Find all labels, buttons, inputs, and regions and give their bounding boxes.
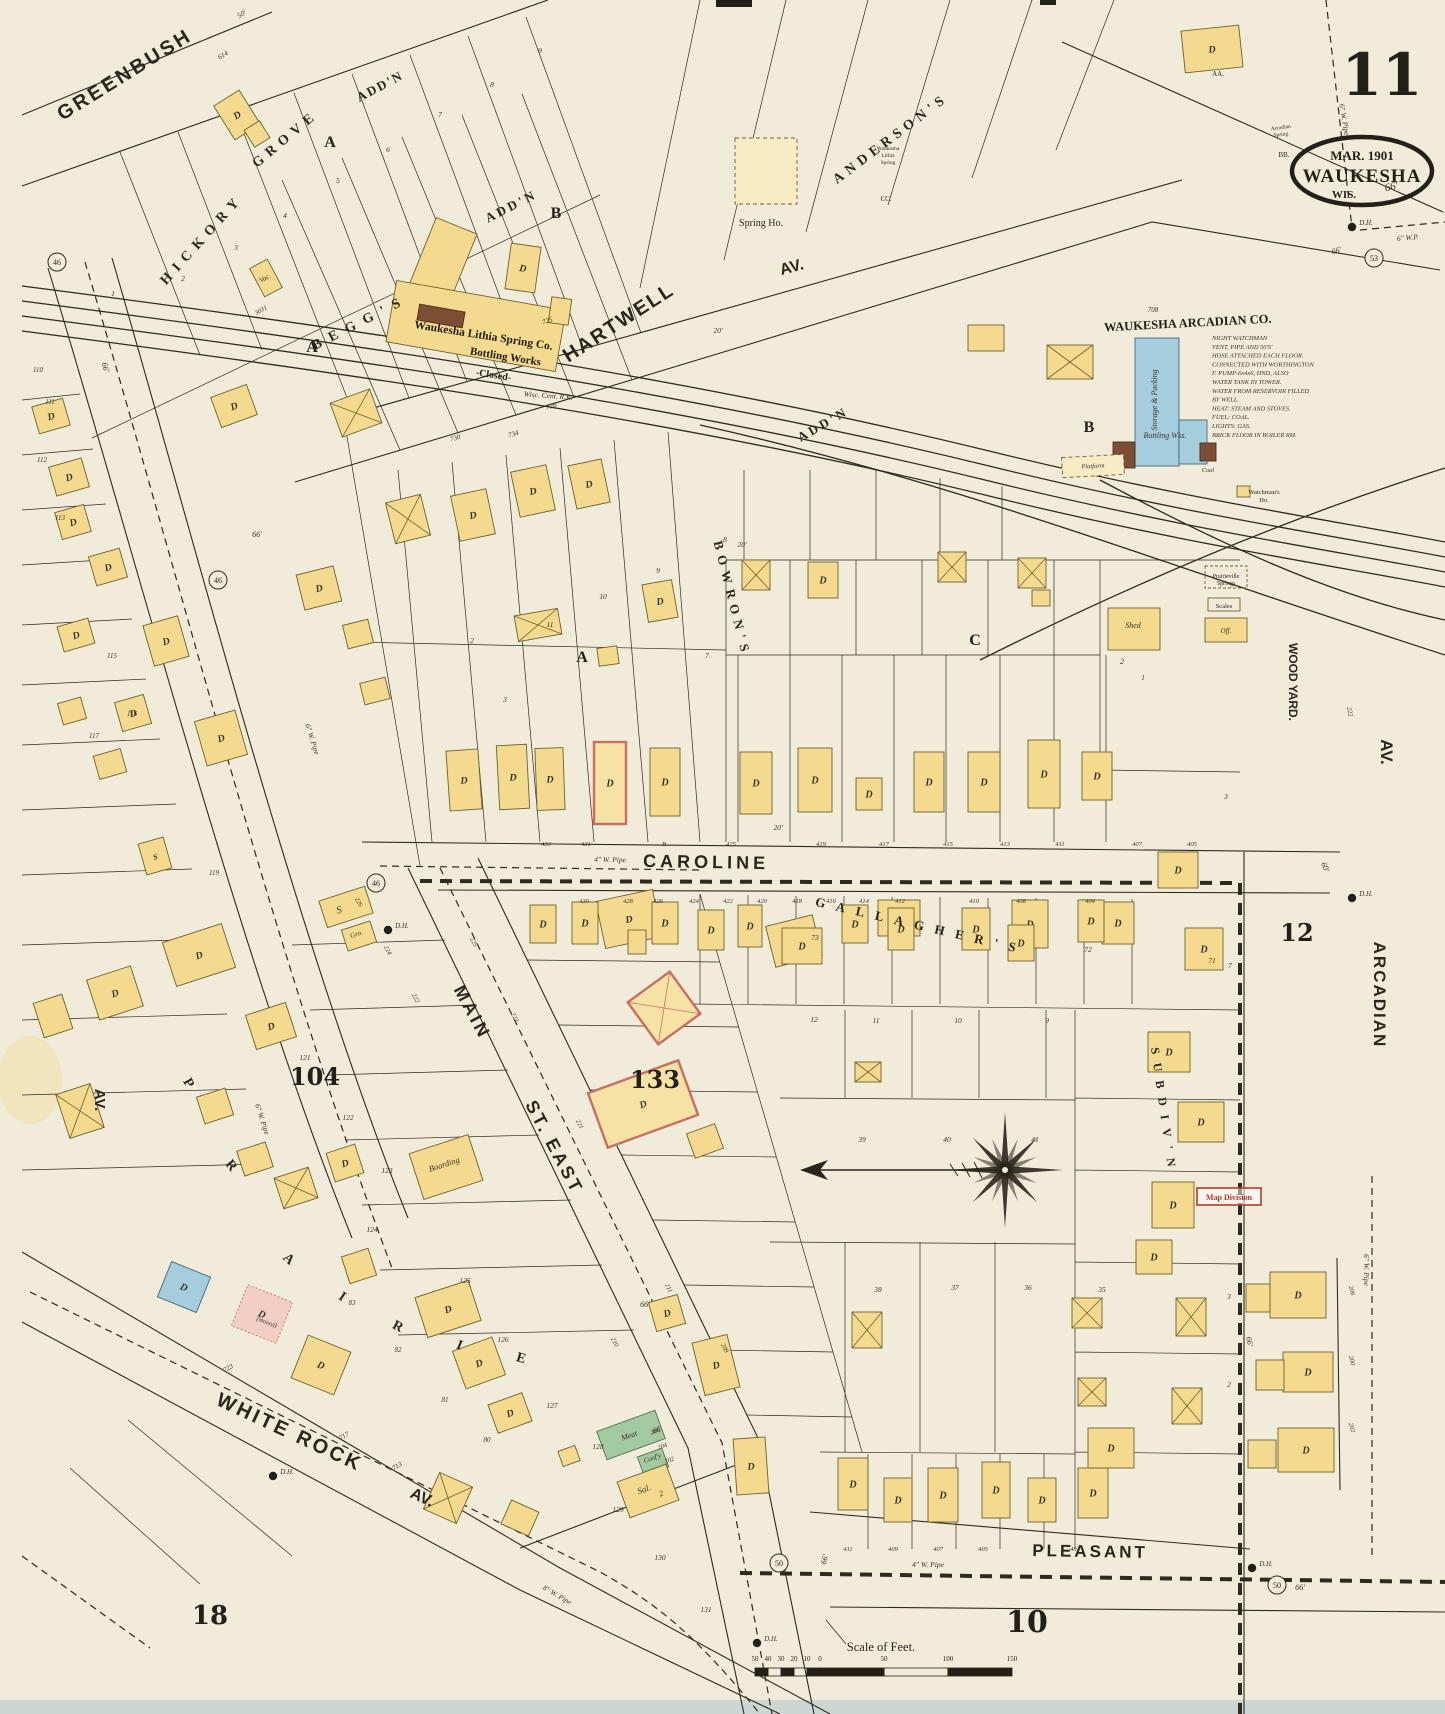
map-label-pl: Watchman's	[1248, 489, 1280, 496]
map-label-lot: 71	[1208, 956, 1216, 965]
map-label-lot: 38	[873, 1285, 882, 1294]
map-label-blk: 12	[1280, 918, 1313, 947]
map-label-lot: 111	[45, 398, 54, 406]
building-use-label: D	[924, 778, 932, 789]
map-label-lot: 3	[502, 695, 507, 704]
map-label-dim: 66'	[640, 1300, 650, 1309]
building: D	[968, 752, 1000, 812]
arcadian-note-line: BY WELL.	[1212, 397, 1239, 404]
building: D	[798, 748, 832, 812]
map-label-ad: 411	[843, 1546, 852, 1553]
map-label-lot: 123	[381, 1166, 393, 1175]
building: D	[733, 1437, 769, 1495]
map-label-ad: B	[662, 841, 666, 848]
map-label-ad: 422	[723, 898, 734, 905]
map-label-lot: 112	[37, 456, 47, 464]
map-label-ad: 418	[792, 898, 803, 905]
stamp-date: MAR. 1901	[1330, 148, 1394, 163]
map-label-ad: 407	[933, 1546, 944, 1553]
map-label-pl: AA.	[1212, 70, 1224, 78]
map-label-ad: 408	[1016, 898, 1027, 905]
map-label-blkletter: A	[576, 649, 588, 666]
map-label-pl: CC.	[880, 195, 891, 203]
building: D	[982, 1462, 1010, 1518]
map-label-lot: 110	[33, 366, 43, 374]
building-use-label: D	[848, 1480, 856, 1491]
building-use-label: D	[893, 1496, 901, 1507]
scale-bar-label: Scale of Feet.	[847, 1640, 915, 1654]
building-footprint	[628, 930, 646, 954]
map-label-ad: 431	[581, 841, 591, 848]
compass-hub	[1002, 1167, 1009, 1174]
building: D	[1028, 1478, 1056, 1522]
building-footprint	[597, 646, 619, 667]
map-label-lot: 125	[459, 1276, 471, 1285]
valve-circle-number: 46	[53, 258, 61, 267]
sanborn-map-sheet: DDDDDDDDDDDDDDDDDDDDDDDDDDDDDDSDDDDDDDDD…	[0, 0, 1445, 1714]
map-label-blk: 10	[1006, 1605, 1048, 1640]
map-label-lot: 35	[1097, 1285, 1106, 1294]
building-use-label: D	[545, 774, 554, 785]
map-label-blkletter: B	[1084, 419, 1095, 436]
building: D	[1283, 1352, 1333, 1392]
scan-edge-band	[0, 1700, 1445, 1714]
building-footprint	[1256, 1360, 1284, 1390]
map-label-lot: 3	[1223, 792, 1228, 801]
building-use-label: D	[1301, 1446, 1309, 1457]
scale-minor-segment	[755, 1668, 768, 1676]
map-label-lot: 113	[55, 514, 65, 522]
building-use-label: D	[508, 772, 517, 783]
map-label-pipe: 6" W.P.	[1397, 232, 1420, 243]
building: D	[738, 905, 762, 947]
map-label-st: PLEASANT	[1032, 1541, 1148, 1562]
map-label-lot: 121	[299, 1053, 310, 1062]
hydrant-label: D.H.	[1358, 890, 1373, 898]
paper-stain	[0, 1036, 62, 1124]
building: D	[642, 580, 678, 623]
building: D	[1152, 1182, 1194, 1228]
map-label-ad: 424	[689, 898, 700, 905]
map-label-lot: 124	[366, 1225, 378, 1234]
building-use-label: D	[991, 1486, 999, 1497]
stamp-city: WAUKESHA	[1303, 166, 1422, 187]
building-use-label: D	[938, 1491, 946, 1502]
building-use-label: D	[1207, 44, 1216, 56]
hydrant-label: D.H.	[394, 922, 409, 930]
map-label-pl: Spring	[881, 160, 896, 166]
map-label-lot: 81	[442, 1396, 449, 1404]
map-label-bl: Bottling Wks.	[1143, 431, 1186, 440]
building	[1072, 1298, 1102, 1328]
map-label-lot: 9	[656, 566, 660, 575]
map-label-ad: 420	[757, 898, 768, 905]
map-label-dim: 20'	[737, 540, 747, 549]
arcadian-note-line: CONNECTED WITH WORTHINGTON	[1212, 361, 1315, 368]
building: D	[496, 744, 529, 809]
arcadian-note-line: VENT. PIPE AND 50'S'	[1212, 344, 1273, 351]
building-use-label: D	[1039, 770, 1047, 781]
building: D	[535, 748, 565, 811]
building-use-label: D	[1088, 1489, 1096, 1500]
map-label-ad: 415	[943, 841, 954, 848]
map-label-lot: 40	[943, 1135, 951, 1144]
map-canvas: DDDDDDDDDDDDDDDDDDDDDDDDDDDDDDSDDDDDDDDD…	[0, 0, 1445, 1714]
scale-tick-label: 50	[881, 1655, 889, 1663]
building	[742, 560, 770, 590]
building: D	[1088, 1428, 1134, 1468]
building: D	[572, 902, 598, 944]
map-label-st: CAROLINE	[643, 851, 769, 873]
scale-major-segment	[948, 1668, 1012, 1676]
hydrant-dot	[1348, 223, 1356, 231]
building-use-label: D	[1106, 1444, 1114, 1455]
building: D	[698, 910, 724, 950]
scale-minor-segment	[781, 1668, 794, 1676]
hydrant-dot	[753, 1639, 761, 1647]
map-label-lot: 82	[395, 1346, 403, 1354]
map-label-blk: 133	[630, 1065, 680, 1094]
map-label-lot: 1	[111, 289, 115, 298]
building: D	[1078, 900, 1104, 942]
map-label-ad: 430	[579, 898, 590, 905]
valve-circle-number: 46	[214, 576, 222, 585]
map-label-lot: 119	[209, 869, 219, 877]
map-label-pl: Spring Ho.	[739, 218, 783, 229]
map-label-lot: 2	[470, 636, 474, 645]
map-label-lot: 130	[654, 1553, 666, 1562]
building-footprint	[1032, 590, 1050, 606]
building-footprint	[1246, 1284, 1270, 1312]
map-label-bl: Platform	[1080, 462, 1105, 470]
scan-artifact	[1040, 0, 1056, 5]
building: D	[1270, 1272, 1326, 1318]
building	[938, 552, 966, 582]
building	[1200, 443, 1216, 461]
building: D	[446, 749, 482, 811]
arcadian-note-line: WATER TANK IN TOWER.	[1212, 379, 1282, 386]
building: D	[652, 902, 678, 944]
scale-tick-label: 30	[778, 1655, 786, 1663]
building: D	[914, 752, 944, 812]
scale-tick-label: 150	[1007, 1655, 1018, 1663]
map-label-ad: 708	[1148, 306, 1159, 314]
building	[1032, 590, 1050, 606]
valve-circle-number: 53	[1370, 254, 1378, 263]
map-label-lot: 117	[89, 732, 99, 740]
building: D	[1185, 928, 1223, 970]
map-label-lot: 115	[107, 652, 117, 660]
map-label-lot: 10	[599, 592, 607, 601]
map-label-dim: 66'	[252, 530, 262, 539]
map-division-text: Map Division	[1206, 1193, 1253, 1202]
building-use-label: D	[1196, 1118, 1204, 1129]
building: D	[808, 562, 838, 598]
building-use-label: D	[745, 922, 753, 933]
map-label-ad: 407	[1132, 841, 1143, 848]
building: D	[530, 905, 556, 943]
map-label-lot: 3	[1226, 1292, 1231, 1301]
map-label-lot: 37	[950, 1283, 959, 1292]
map-label-ad: 425	[726, 841, 737, 848]
scale-major-segment	[820, 1668, 884, 1676]
building-use-label: D	[1168, 1201, 1176, 1212]
map-label-bl: Coal	[1202, 467, 1215, 474]
map-label-blkletter: A	[306, 339, 318, 356]
map-label-ad: 405	[978, 1546, 989, 1553]
building-footprint	[1248, 1440, 1276, 1468]
map-label-lot: 12	[810, 1015, 818, 1024]
map-label-lot: 36	[1023, 1283, 1032, 1292]
building	[628, 930, 646, 954]
building-use-label: D	[979, 778, 987, 789]
map-label-lot: 2	[1227, 1380, 1231, 1389]
building-use-label: D	[751, 779, 759, 790]
map-label-pl: Springs	[1217, 581, 1236, 587]
building	[1018, 558, 1046, 588]
map-label-lot: 80	[484, 1436, 492, 1444]
map-label-ad: 419	[816, 841, 827, 848]
map-label-lot: 127	[546, 1401, 558, 1410]
building-use-label: D	[660, 919, 668, 930]
map-label-dim: 20'	[773, 823, 783, 832]
building: D	[1158, 852, 1198, 888]
building-use-label: D	[1199, 945, 1207, 956]
arcadian-note-line: HOSE ATTACHED EACH FLOOR.	[1211, 353, 1304, 360]
arcadian-note-line: WATER FROM RESERVOIR FILLED	[1212, 388, 1310, 395]
building-use-label: D	[1173, 866, 1181, 877]
building: D	[1278, 1428, 1334, 1472]
map-label-blk: 18	[192, 1601, 228, 1631]
map-label-lot: 8	[723, 535, 727, 544]
building-use-label: D	[1113, 919, 1121, 930]
scale-tick-label: 0	[818, 1655, 822, 1663]
map-label-lot: 9	[1045, 1016, 1049, 1025]
map-label-lot: 126	[497, 1335, 509, 1344]
building: D	[884, 1478, 912, 1522]
map-label-ad: 433	[541, 841, 552, 848]
building-use-label: D	[706, 926, 714, 937]
hydrant-label: D.H.	[1258, 1560, 1273, 1568]
map-label-ad: 426	[653, 898, 664, 905]
building-footprint	[735, 138, 797, 204]
map-label-lot: 7	[438, 110, 442, 119]
map-label-st: ARCADIAN	[1370, 942, 1389, 1049]
map-label-bl: Storage & Packing	[1150, 369, 1159, 430]
map-label-ad: 409	[888, 1546, 899, 1553]
scale-tick-label: 10	[804, 1655, 812, 1663]
map-label-lot: 10	[954, 1016, 962, 1025]
building-use-label: D	[1164, 1048, 1172, 1059]
arcadian-note-line: HEAT: STEAM AND STOVES.	[1211, 405, 1291, 412]
hydrant-label: D.H.	[279, 1468, 294, 1476]
scale-minor-segment	[807, 1668, 820, 1676]
building: D	[505, 243, 541, 293]
map-label-ad: 404	[1085, 898, 1096, 905]
map-label-pipe: 6" W. Pipe	[1362, 1254, 1371, 1286]
scale-tick-label: 20	[791, 1655, 799, 1663]
map-label-lot: 129	[612, 1505, 624, 1514]
map-label-lot: 116	[127, 710, 137, 718]
building: D	[1082, 752, 1112, 800]
building: D	[1136, 1240, 1172, 1274]
map-label-lot: 4	[283, 211, 287, 220]
hydrant-dot	[384, 926, 392, 934]
map-label-ad: 411	[1055, 841, 1064, 848]
map-label-ad: 413	[1000, 841, 1011, 848]
building: D	[1028, 740, 1060, 808]
map-label-bl: Off.	[1221, 627, 1232, 635]
building: D	[856, 778, 882, 810]
building-use-label: D	[818, 576, 826, 587]
sheet-number: 11	[1342, 41, 1423, 109]
building: D	[1078, 1468, 1108, 1518]
building	[1078, 1378, 1106, 1406]
map-label-blkletter: C	[969, 632, 981, 649]
map-label-lot: 7	[1228, 961, 1232, 970]
building-use-label: D	[810, 776, 818, 787]
map-label-lot: 11	[873, 1016, 880, 1025]
map-label-lot: 83	[349, 1299, 357, 1307]
map-label-st: WOOD YARD.	[1286, 643, 1300, 721]
building-use-label: D	[1086, 917, 1094, 928]
scale-tick-label: 50	[752, 1655, 760, 1663]
scale-tick-label: 100	[943, 1655, 954, 1663]
building	[597, 646, 619, 667]
map-label-blkletter: A	[324, 134, 336, 151]
map-label-lot: 7	[705, 651, 709, 660]
building-use-label: D	[1092, 772, 1100, 783]
map-label-lot: 72	[1084, 945, 1092, 954]
building-use-label: D	[580, 919, 588, 930]
valve-circle-number: 50	[1273, 1581, 1281, 1590]
map-label-pl: Lithia	[881, 153, 895, 159]
hydrant-label: D.H.	[1358, 219, 1373, 227]
map-label-ad: 417	[879, 841, 890, 848]
building	[852, 1312, 882, 1348]
map-label-ad: 428	[623, 898, 634, 905]
building	[1047, 345, 1093, 379]
map-label-pl: Prairieville	[1213, 574, 1240, 580]
map-label-dim: 66'	[1244, 1336, 1255, 1347]
map-label-lot: 73	[811, 933, 819, 942]
map-label-ad: 414	[859, 898, 870, 905]
building	[735, 138, 797, 204]
map-division-stamp: Map Division	[1197, 1188, 1261, 1205]
map-label-bl: Shed	[1125, 621, 1142, 630]
building	[1176, 1298, 1206, 1336]
hydrant-dot	[1248, 1564, 1256, 1572]
building-use-label: D	[538, 920, 546, 931]
hydrant-label: D.H.	[763, 1635, 778, 1643]
map-label-blkletter: B	[551, 205, 562, 222]
building: D	[740, 752, 772, 814]
arcadian-note-line: LIGHTS: GAS.	[1211, 423, 1251, 430]
building-use-label: D	[850, 920, 858, 931]
map-label-lot: 122	[342, 1113, 354, 1122]
map-label-pl: Waukesha	[877, 146, 900, 152]
map-label-dim: 20'	[713, 326, 723, 335]
building-footprint	[968, 325, 1004, 351]
building-use-label: D	[660, 778, 668, 789]
building-use-label: D	[605, 779, 613, 790]
valve-circle-number: 46	[372, 879, 380, 888]
map-label-ad: 412	[895, 898, 906, 905]
map-label-pl: Scales	[1216, 603, 1233, 610]
map-label-lot: 39	[857, 1135, 866, 1144]
map-label-ad: 405	[1187, 841, 1198, 848]
stamp-state: WIS.	[1332, 189, 1356, 201]
map-label-lot: 128	[592, 1442, 604, 1451]
building	[968, 325, 1004, 351]
arcadian-note-line: BRICK FLOOR IN BOILER RM.	[1212, 432, 1297, 439]
arcadian-note-line: FUEL: COAL.	[1211, 414, 1250, 421]
scale-tick-label: 40	[765, 1655, 773, 1663]
map-label-lot: 9	[538, 46, 542, 55]
map-label-ad: 410	[969, 898, 980, 905]
building	[855, 1062, 881, 1082]
building: D	[1102, 902, 1134, 944]
map-label-pl: BB.	[1278, 151, 1289, 159]
building-use-label: D	[1037, 1496, 1045, 1507]
map-label-ad: 416	[826, 898, 837, 905]
map-label-pl: Ho.	[1259, 497, 1269, 504]
map-label-pipe: 4" W. Pipe	[912, 1560, 944, 1569]
building	[1246, 1284, 1270, 1312]
map-label-dim: 66'	[1295, 1583, 1305, 1592]
building-use-label: D	[518, 263, 528, 275]
building: D	[928, 1468, 958, 1522]
scan-artifact	[716, 0, 752, 7]
map-label-lot: 1	[1141, 673, 1145, 682]
hydrant-dot	[1348, 894, 1356, 902]
map-label-st: AV.	[1377, 739, 1396, 765]
building: D	[594, 742, 626, 824]
building-use-label: D	[459, 775, 468, 787]
map-label-ad: 401	[1070, 1546, 1080, 1553]
building-footprint	[1200, 443, 1216, 461]
building-use-label: D	[797, 942, 805, 953]
map-label-lot: 6	[386, 145, 390, 154]
building: D	[1178, 1102, 1224, 1142]
building-use-label: D	[746, 1461, 755, 1473]
map-label-lot: 3	[233, 243, 238, 252]
building	[1248, 1440, 1276, 1468]
building: D	[838, 1458, 868, 1510]
map-label-lot: 11	[547, 620, 554, 629]
map-label-lot: 5	[336, 176, 340, 185]
arcadian-note-line: F. PUMP-6x4x6, HND, ALSO	[1211, 370, 1289, 377]
map-label-lot: 2	[1120, 657, 1124, 666]
map-label-lot: 8	[490, 80, 494, 89]
building-use-label: D	[1293, 1291, 1301, 1302]
hydrant-dot	[269, 1472, 277, 1480]
map-label-st: AV.	[91, 1089, 108, 1112]
map-label-blk: 104	[290, 1062, 340, 1091]
building-use-label: D	[1303, 1368, 1311, 1379]
arcadian-note-line: NIGHT WATCHMAN	[1211, 335, 1268, 342]
building: D	[1181, 25, 1243, 73]
map-label-lot: 131	[700, 1605, 711, 1614]
building-use-label: D	[864, 790, 872, 801]
building	[1256, 1360, 1284, 1390]
building: D	[650, 748, 680, 816]
map-label-lot: 2	[181, 274, 185, 283]
map-label-pipe: 4" W. Pipe	[594, 855, 627, 865]
building-use-label: D	[1149, 1253, 1157, 1264]
building	[1172, 1388, 1202, 1424]
valve-circle-number: 50	[775, 1559, 783, 1568]
